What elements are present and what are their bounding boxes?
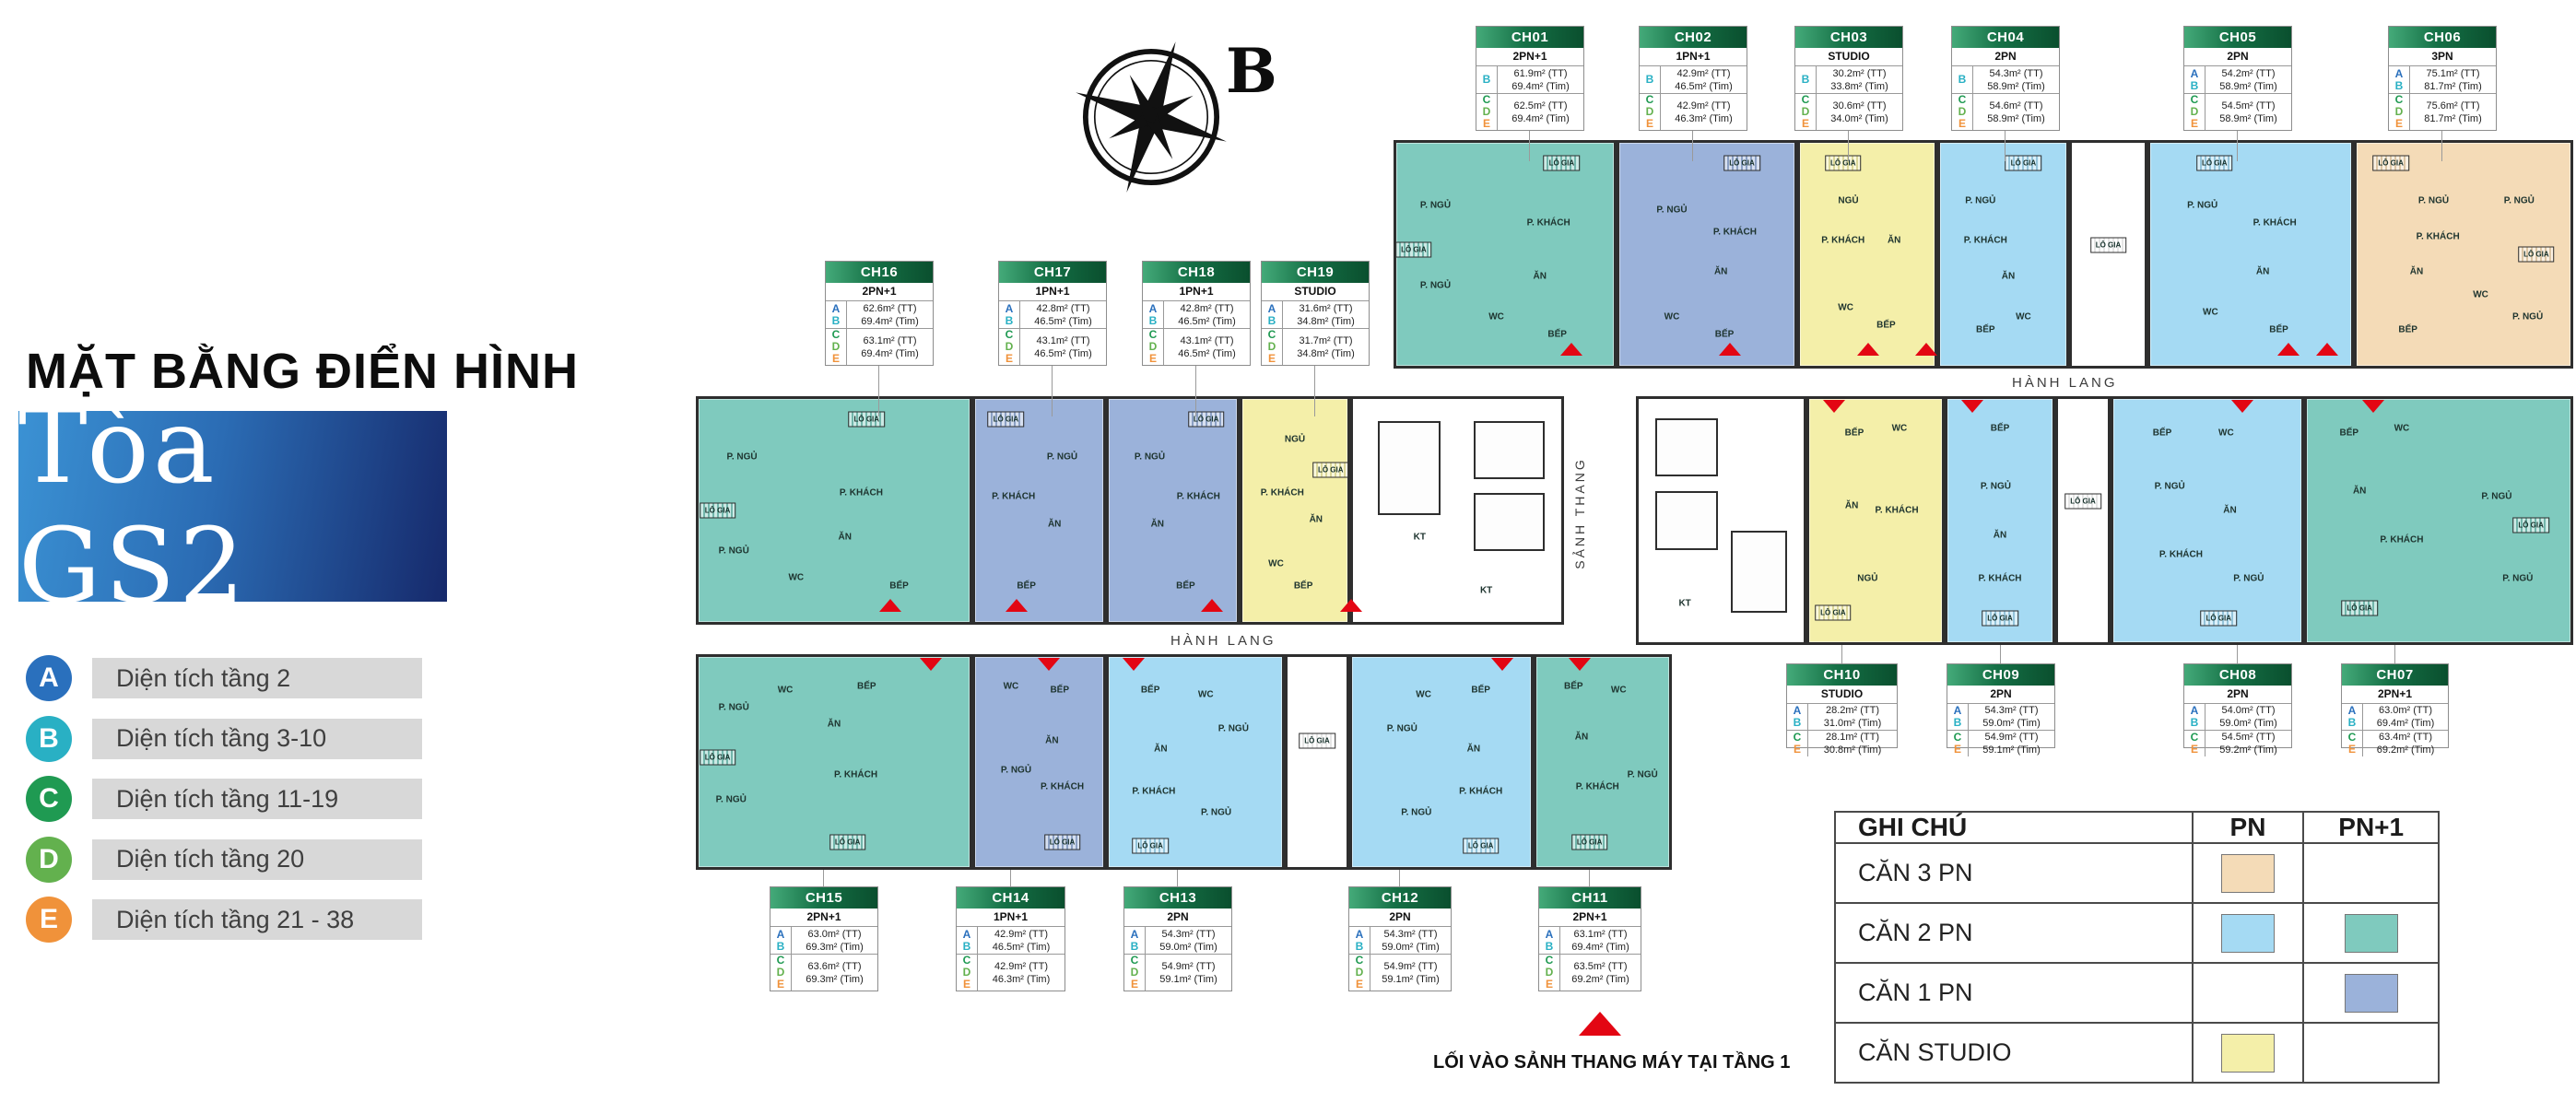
logia-label: LÔ GIA	[829, 834, 866, 850]
elevator-shaft	[1474, 493, 1545, 551]
logia-label: LÔ GIA	[1723, 155, 1760, 170]
room-label: WC	[1664, 311, 1680, 322]
plan-unit-conn-w: LÔ GIA	[1285, 654, 1349, 870]
unit-card-floor-letters: AB	[1787, 704, 1808, 730]
room-label: P. KHÁCH	[1978, 574, 2021, 584]
unit-card-title: CH13	[1124, 887, 1231, 909]
unit-card-ch18: CH181PN+1AB42.8m² (TT)46.5m² (Tim)CDE43.…	[1142, 261, 1251, 366]
entrance-arrow	[1006, 599, 1028, 612]
card-leader-line	[1399, 870, 1400, 886]
unit-card-type: 3PN	[2389, 48, 2496, 66]
room-label: BẾP	[1876, 321, 1896, 331]
floor-letter-e: E	[1795, 118, 1816, 130]
plan-unit-ch06: LÔ GIAP. NGỦP. NGỦP. KHÁCHĂNLÔ GIAWCBẾPP…	[2354, 140, 2573, 369]
entrance-arrow	[1857, 343, 1879, 356]
unit-card-ch08: CH082PNAB54.0m² (TT)59.0m² (Tim)CE54.5m²…	[2183, 663, 2292, 748]
unit-card-type: 2PN	[2184, 686, 2291, 704]
unit-card-type: 2PN+1	[2342, 686, 2448, 704]
unit-card-ch02: CH021PN+1B42.9m² (TT)46.5m² (Tim)CDE42.9…	[1639, 26, 1747, 131]
unit-card-ch07: CH072PN+1AB63.0m² (TT)69.4m² (Tim)CE63.4…	[2341, 663, 2449, 748]
unit-card-areas: 42.8m² (TT)46.5m² (Tim)	[1164, 301, 1250, 328]
unit-card-areas: 63.5m² (TT)69.2m² (Tim)	[1560, 955, 1641, 991]
floor-letter-a: A	[957, 929, 977, 941]
plan-unit-ch01: LÔ GIAP. NGỦP. KHÁCHLÔ GIAP. NGỦĂNWCBẾP	[1394, 140, 1617, 369]
floor-plan-page: { "title": "MẶT BẰNG ĐIỂN HÌNH", "buildi…	[0, 0, 2576, 1102]
unit-card-floor-letters: CDE	[1640, 94, 1661, 130]
card-leader-line	[1529, 129, 1530, 161]
card-leader-line	[2441, 129, 2442, 161]
room-label: ĂN	[1151, 519, 1164, 529]
unit-card-area-row: CDE75.6m² (TT)81.7m² (Tim)	[2389, 94, 2496, 130]
room-label: P. KHÁCH	[2380, 535, 2423, 545]
elevator-shaft	[1655, 418, 1718, 476]
elevator-shaft	[1731, 531, 1787, 614]
floor-letter-e: E	[826, 353, 846, 365]
room-label: BẾP	[2153, 428, 2172, 438]
room-label: WC	[778, 686, 794, 696]
card-leader-line	[1589, 870, 1590, 886]
room-label: P. KHÁCH	[1527, 218, 1570, 229]
unit-card-type: 2PN	[2184, 48, 2291, 66]
legend-table-row: CĂN 2 PN	[1835, 903, 2439, 963]
legend-swatch-pn-cell	[2193, 903, 2304, 963]
card-leader-line	[2000, 645, 2001, 663]
floor-letter-a: A	[2389, 68, 2409, 80]
unit-card-floor-letters: AB	[1539, 927, 1560, 954]
room-label: BẾP	[1564, 681, 1583, 691]
logia-label: LÔ GIA	[2341, 601, 2378, 616]
floor-letter-b: B	[1539, 941, 1559, 953]
room-label: ĂN	[1154, 744, 1167, 755]
floor-letter-b: B	[2184, 717, 2205, 729]
room-label: ĂN	[1714, 267, 1727, 277]
room-label: WC	[2016, 311, 2031, 322]
room-label: BẾP	[2398, 325, 2417, 335]
legend-swatch-pn-cell	[2193, 1023, 2304, 1083]
room-label: BẾP	[1141, 686, 1160, 696]
unit-card-areas: 28.1m² (TT)30.8m² (Tim)	[1808, 731, 1897, 756]
card-leader-line	[1314, 364, 1315, 416]
unit-card-area-row: AB75.1m² (TT)81.7m² (Tim)	[2389, 66, 2496, 94]
entrance-arrow	[1560, 343, 1582, 356]
unit-card-area-row: AB54.3m² (TT)59.0m² (Tim)	[1124, 927, 1231, 955]
unit-card-area-row: CDE31.7m² (TT)34.8m² (Tim)	[1262, 329, 1369, 365]
unit-card-title: CH08	[2184, 664, 2291, 686]
room-label: ĂN	[839, 533, 852, 543]
color-swatch-2pn	[2221, 914, 2275, 953]
plan-unit-ch05: LÔ GIAP. NGỦP. KHÁCHĂNWCBẾP	[2147, 140, 2354, 369]
unit-card-area-row: CDE54.9m² (TT)59.1m² (Tim)	[1349, 955, 1451, 991]
room-label: ĂN	[1575, 732, 1588, 742]
entrance-arrow	[1719, 343, 1741, 356]
room-label: P. NGỦ	[1001, 766, 1031, 776]
legend-swatch-pn1-cell	[2303, 963, 2439, 1023]
lobby-label: SẢNH THANG	[1561, 426, 1598, 601]
plan-unit-conn-e: LÔ GIA	[2055, 396, 2111, 645]
floor-letter-a: A	[1539, 929, 1559, 941]
unit-card-floor-letters: AB	[999, 301, 1020, 328]
legend-table-row: CĂN 1 PN	[1835, 963, 2439, 1023]
room-label: WC	[1892, 423, 1908, 433]
room-label: P. KHÁCH	[1261, 487, 1304, 498]
room-label: BẾP	[1845, 428, 1864, 438]
unit-card-floor-letters: CDE	[999, 329, 1020, 365]
unit-card-floor-letters: CDE	[1952, 94, 1973, 130]
legend-swatch-pn-cell	[2193, 963, 2304, 1023]
unit-card-floor-letters: B	[1476, 66, 1498, 93]
unit-card-floor-letters: CE	[2184, 731, 2205, 756]
room-label: P. KHÁCH	[1713, 227, 1757, 237]
legend-swatch-pn-cell	[2193, 843, 2304, 903]
floor-legend-row: DDiện tích tầng 20	[0, 837, 424, 883]
floor-letter-e: E	[2342, 744, 2362, 756]
unit-card-areas: 54.9m² (TT)59.1m² (Tim)	[1370, 955, 1451, 991]
floor-letter-b: B	[1947, 717, 1968, 729]
unit-card-floor-letters: AB	[770, 927, 792, 954]
unit-card-type: 2PN	[1349, 909, 1451, 927]
plan-unit-ch04: LÔ GIAP. NGỦP. KHÁCHĂNWCBẾP	[1937, 140, 2069, 369]
entrance-arrow	[1961, 400, 1983, 413]
unit-card-area-row: AB63.0m² (TT)69.4m² (Tim)	[2342, 704, 2448, 731]
unit-card-type: STUDIO	[1795, 48, 1902, 66]
floor-letter-b: B	[957, 941, 977, 953]
logia-label: LÔ GIA	[1825, 155, 1862, 170]
room-label: ĂN	[1888, 236, 1900, 246]
plan-unit-ch09: BẾPP. NGỦĂNP. KHÁCHLÔ GIA	[1945, 396, 2055, 645]
entrance-arrow	[1915, 343, 1937, 356]
room-label: ĂN	[2410, 267, 2423, 277]
card-leader-line	[2237, 129, 2238, 161]
unit-card-area-row: AB42.8m² (TT)46.5m² (Tim)	[999, 301, 1106, 329]
room-label: BẾP	[1294, 581, 1313, 592]
plan-unit-ch16: LÔ GIALÔ GIAP. NGỦP. KHÁCHP. NGỦĂNWCBẾP	[696, 396, 972, 625]
logia-label: LÔ GIA	[2196, 155, 2233, 170]
unit-card-areas: 54.3m² (TT)58.9m² (Tim)	[1973, 66, 2059, 93]
room-label: P. NGỦ	[1981, 482, 2011, 492]
room-label: P. NGỦ	[1628, 769, 1658, 780]
logia-label: LÔ GIA	[1815, 605, 1852, 621]
entrance-arrow	[1491, 658, 1513, 671]
unit-card-title: CH09	[1947, 664, 2054, 686]
room-label: BẾP	[1050, 686, 1069, 696]
floor-letter-a: A	[770, 929, 791, 941]
floor-legend-badge-c: C	[26, 776, 72, 822]
room-label: ĂN	[1310, 514, 1323, 524]
entrance-arrow	[1579, 1012, 1621, 1036]
logia-label: LÔ GIA	[1312, 463, 1349, 478]
room-label: P. KHÁCH	[1177, 492, 1220, 502]
floor-letter-e: E	[1124, 979, 1145, 991]
card-leader-line	[1841, 645, 1842, 663]
legend-row-label: CĂN 1 PN	[1835, 963, 2193, 1023]
floor-legend-badge-d: D	[26, 837, 72, 883]
floor-letter-a: A	[2184, 68, 2205, 80]
room-label: WC	[1488, 311, 1504, 322]
unit-card-areas: 75.1m² (TT)81.7m² (Tim)	[2410, 66, 2496, 93]
room-label: BẾP	[1176, 581, 1195, 592]
room-label: P. NGỦ	[2418, 195, 2449, 205]
plan-unit-ch11: BẾPWCĂNP. KHÁCHP. NGỦLÔ GIA	[1534, 654, 1672, 870]
unit-card-floor-letters: B	[1952, 66, 1973, 93]
room-label: BẾP	[1991, 423, 2010, 433]
unit-card-area-row: B42.9m² (TT)46.5m² (Tim)	[1640, 66, 1747, 94]
card-leader-line	[2005, 129, 2006, 161]
unit-card-area-row: CDE54.9m² (TT)59.1m² (Tim)	[1124, 955, 1231, 991]
legend-row-label: CĂN 2 PN	[1835, 903, 2193, 963]
unit-card-area-row: AB63.0m² (TT)69.3m² (Tim)	[770, 927, 877, 955]
entrance-arrow	[1340, 599, 1362, 612]
room-label: ĂN	[828, 719, 841, 729]
unit-card-area-row: CDE43.1m² (TT)46.5m² (Tim)	[1143, 329, 1250, 365]
legend-table-row: CĂN STUDIO	[1835, 1023, 2439, 1083]
logia-label: LÔ GIA	[1299, 733, 1335, 749]
unit-card-floor-letters: B	[1795, 66, 1817, 93]
unit-card-ch12: CH122PNAB54.3m² (TT)59.0m² (Tim)CDE54.9m…	[1348, 886, 1452, 991]
entrance-arrow	[2362, 400, 2384, 413]
room-label: P. NGỦ	[1387, 723, 1417, 733]
corridor-label: HÀNH LANG	[1170, 633, 1276, 649]
legend-table-header-pn: PN	[2193, 812, 2304, 843]
floor-letter-e: E	[1349, 979, 1370, 991]
unit-card-area-row: AB62.6m² (TT)69.4m² (Tim)	[826, 301, 933, 329]
room-label: WC	[788, 572, 804, 582]
unit-card-areas: 31.6m² (TT)34.8m² (Tim)	[1283, 301, 1369, 328]
unit-card-area-row: AB54.3m² (TT)59.0m² (Tim)	[1349, 927, 1451, 955]
unit-card-type: 1PN+1	[957, 909, 1065, 927]
floor-letter-e: E	[2389, 118, 2409, 130]
floor-letter-b: B	[826, 315, 846, 327]
room-label: P. NGỦ	[1135, 451, 1165, 462]
room-label: P. KHÁCH	[1132, 786, 1175, 796]
unit-card-ch13: CH132PNAB54.3m² (TT)59.0m² (Tim)CDE54.9m…	[1123, 886, 1232, 991]
unit-card-type: 2PN	[1124, 909, 1231, 927]
unit-card-floor-letters: CDE	[1795, 94, 1817, 130]
room-label: WC	[1268, 559, 1284, 569]
room-label: BẾP	[1471, 686, 1490, 696]
unit-card-areas: 54.0m² (TT)59.0m² (Tim)	[2205, 704, 2291, 730]
room-label: P. KHÁCH	[2159, 549, 2203, 559]
room-label: WC	[2218, 428, 2234, 438]
unit-card-area-row: AB42.8m² (TT)46.5m² (Tim)	[1143, 301, 1250, 329]
unit-card-ch06: CH063PNAB75.1m² (TT)81.7m² (Tim)CDE75.6m…	[2388, 26, 2497, 131]
unit-card-areas: 42.9m² (TT)46.5m² (Tim)	[978, 927, 1065, 954]
unit-card-floor-letters: AB	[1124, 927, 1146, 954]
room-label: ĂN	[2256, 267, 2269, 277]
room-label: BẾP	[2339, 428, 2358, 438]
legend-table-header-ghichu: GHI CHÚ	[1835, 812, 2193, 843]
entrance-note: LỐI VÀO SẢNH THANG MÁY TẠI TẦNG 1	[1433, 1052, 1783, 1073]
unit-card-area-row: AB31.6m² (TT)34.8m² (Tim)	[1262, 301, 1369, 329]
plan-unit-ch10: BẾPWCĂNP. KHÁCHNGỦLÔ GIA	[1806, 396, 1945, 645]
unit-card-areas: 43.1m² (TT)46.5m² (Tim)	[1020, 329, 1106, 365]
unit-card-type: 2PN+1	[1476, 48, 1583, 66]
building-name-banner: Tòa GS2	[18, 411, 447, 602]
room-label: P. NGỦ	[716, 795, 747, 805]
plan-unit-ch02: LÔ GIAP. NGỦP. KHÁCHĂNWCBẾP	[1617, 140, 1797, 369]
logia-label: LÔ GIA	[2064, 493, 2101, 509]
unit-card-area-row: AB28.2m² (TT)31.0m² (Tim)	[1787, 704, 1897, 731]
logia-label: LÔ GIA	[1982, 610, 2018, 626]
room-label: ĂN	[1994, 530, 2006, 540]
unit-card-ch17: CH171PN+1AB42.8m² (TT)46.5m² (Tim)CDE43.…	[998, 261, 1107, 366]
unit-card-area-row: CE54.9m² (TT)59.1m² (Tim)	[1947, 731, 2054, 756]
floor-letter-b: B	[1124, 941, 1145, 953]
logia-label: LÔ GIA	[1132, 838, 1169, 854]
room-label: P. KHÁCH	[1876, 506, 1919, 516]
logia-label: LÔ GIA	[700, 750, 736, 766]
unit-card-areas: 54.3m² (TT)59.0m² (Tim)	[1146, 927, 1231, 954]
unit-card-type: STUDIO	[1262, 283, 1369, 301]
plan-unit-core-e: KT	[1636, 396, 1806, 645]
unit-card-areas: 62.5m² (TT)69.4m² (Tim)	[1498, 94, 1583, 130]
logia-label: LÔ GIA	[1044, 834, 1081, 850]
legend-row-label: CĂN STUDIO	[1835, 1023, 2193, 1083]
unit-card-title: CH16	[826, 262, 933, 283]
unit-card-floor-letters: AB	[826, 301, 847, 328]
floor-legend-row: CDiện tích tầng 11-19	[0, 776, 424, 822]
floor-letter-b: B	[1262, 315, 1282, 327]
unit-card-area-row: AB54.2m² (TT)58.9m² (Tim)	[2184, 66, 2291, 94]
unit-card-areas: 42.8m² (TT)46.5m² (Tim)	[1020, 301, 1106, 328]
room-label: ĂN	[1467, 744, 1480, 755]
unit-card-areas: 30.2m² (TT)33.8m² (Tim)	[1817, 66, 1902, 93]
unit-card-title: CH04	[1952, 27, 2059, 48]
unit-card-areas: 54.2m² (TT)58.9m² (Tim)	[2205, 66, 2291, 93]
unit-card-areas: 42.9m² (TT)46.5m² (Tim)	[1661, 66, 1747, 93]
unit-card-ch19: CH19STUDIOAB31.6m² (TT)34.8m² (Tim)CDE31…	[1261, 261, 1370, 366]
floor-letter-e: E	[2184, 118, 2205, 130]
unit-card-floor-letters: AB	[2184, 704, 2205, 730]
floor-letter-b: B	[1349, 941, 1370, 953]
room-label: ĂN	[1534, 272, 1547, 282]
legend-table-row: CĂN 3 PN	[1835, 843, 2439, 903]
room-label: WC	[1198, 690, 1214, 700]
entrance-arrow	[1201, 599, 1223, 612]
room-label: P. NGỦ	[2502, 574, 2533, 584]
unit-card-floor-letters: AB	[1143, 301, 1164, 328]
unit-card-areas: 42.9m² (TT)46.3m² (Tim)	[978, 955, 1065, 991]
floor-legend-row: EDiện tích tầng 21 - 38	[0, 897, 424, 943]
unit-card-floor-letters: CE	[1787, 731, 1808, 756]
room-label: KT	[1480, 586, 1492, 596]
color-swatch-2pn1	[2345, 914, 2398, 953]
room-label: WC	[1004, 681, 1019, 691]
room-label: P. NGỦ	[1201, 807, 1231, 817]
unit-card-title: CH02	[1640, 27, 1747, 48]
unit-card-title: CH07	[2342, 664, 2448, 686]
floor-letter-b: B	[2184, 80, 2205, 92]
room-label: P. NGỦ	[1656, 205, 1687, 215]
floor-letter-e: E	[957, 979, 977, 991]
unit-card-area-row: B30.2m² (TT)33.8m² (Tim)	[1795, 66, 1902, 94]
floor-legend-badge-b: B	[26, 716, 72, 762]
elevator-shaft	[1474, 421, 1545, 479]
unit-card-ch16: CH162PN+1AB62.6m² (TT)69.4m² (Tim)CDE63.…	[825, 261, 934, 366]
logia-label: LÔ GIA	[988, 411, 1025, 427]
plan-unit-ch17: LÔ GIAP. NGỦP. KHÁCHĂNBẾP	[972, 396, 1106, 625]
logia-label: LÔ GIA	[2512, 518, 2549, 533]
room-label: NGỦ	[1857, 574, 1877, 584]
room-label: ĂN	[2002, 272, 2015, 282]
room-label: WC	[1838, 303, 1853, 313]
room-label: WC	[1611, 686, 1627, 696]
unit-card-area-row: CDE43.1m² (TT)46.5m² (Tim)	[999, 329, 1106, 365]
logia-label: LÔ GIA	[2518, 247, 2555, 263]
unit-card-area-row: CDE30.6m² (TT)34.0m² (Tim)	[1795, 94, 1902, 130]
plan-unit-ch18: LÔ GIAP. NGỦP. KHÁCHĂNBẾP	[1106, 396, 1240, 625]
unit-card-title: CH12	[1349, 887, 1451, 909]
unit-card-floor-letters: CE	[1947, 731, 1969, 756]
floor-legend-label: Diện tích tầng 21 - 38	[92, 899, 422, 940]
plan-unit-ch14: WCBẾPĂNP. NGỦP. KHÁCHLÔ GIA	[972, 654, 1106, 870]
card-leader-line	[2394, 645, 2395, 663]
floor-letter-e: E	[770, 979, 791, 991]
unit-card-floor-letters: AB	[1349, 927, 1370, 954]
unit-card-type: STUDIO	[1787, 686, 1897, 704]
floor-letter-e: E	[1539, 979, 1559, 991]
unit-card-area-row: B54.3m² (TT)58.9m² (Tim)	[1952, 66, 2059, 94]
compass-rose-icon	[1067, 33, 1235, 201]
logia-label: LÔ GIA	[2006, 155, 2042, 170]
unit-card-ch03: CH03STUDIOB30.2m² (TT)33.8m² (Tim)CDE30.…	[1794, 26, 1903, 131]
unit-card-title: CH15	[770, 887, 877, 909]
logia-label: LÔ GIA	[1188, 411, 1225, 427]
floor-letter-b: B	[2389, 80, 2409, 92]
unit-card-areas: 54.3m² (TT)59.0m² (Tim)	[1370, 927, 1451, 954]
legend-table-header-pn1: PN+1	[2303, 812, 2439, 843]
room-label: P. NGỦ	[1401, 807, 1431, 817]
card-leader-line	[1848, 129, 1849, 161]
room-label: BẾP	[1976, 325, 1995, 335]
unit-card-floor-letters: AB	[2342, 704, 2363, 730]
legend-swatch-pn1-cell	[2303, 1023, 2439, 1083]
floor-legend-label: Diện tích tầng 2	[92, 658, 422, 698]
unit-card-areas: 54.9m² (TT)59.1m² (Tim)	[1969, 731, 2054, 756]
room-label: NGỦ	[1838, 195, 1858, 205]
room-label: ĂN	[1045, 736, 1058, 746]
floor-letter-e: E	[2184, 744, 2205, 756]
unit-card-type: 2PN	[1952, 48, 2059, 66]
room-label: P. NGỦ	[1047, 451, 1077, 462]
room-label: BẾP	[889, 581, 909, 592]
floor-letter-e: E	[1476, 118, 1497, 130]
floor-letter-a: A	[1143, 303, 1163, 315]
room-label: P. NGỦ	[2155, 482, 2185, 492]
unit-card-floor-letters: AB	[2389, 66, 2410, 93]
plan-unit-ch19: NGỦLÔ GIAP. KHÁCHĂNWCBẾP	[1240, 396, 1350, 625]
logia-label: LÔ GIA	[2372, 155, 2409, 170]
room-label: P. NGỦ	[2187, 200, 2217, 210]
building-name: Tòa GS2	[18, 387, 447, 627]
unit-card-areas: 63.0m² (TT)69.4m² (Tim)	[2363, 704, 2448, 730]
card-leader-line	[1052, 364, 1053, 416]
unit-card-floor-letters: CDE	[1349, 955, 1370, 991]
unit-card-title: CH05	[2184, 27, 2291, 48]
unit-card-type: 2PN	[1947, 686, 2054, 704]
unit-card-area-row: AB63.1m² (TT)69.4m² (Tim)	[1539, 927, 1641, 955]
room-label: KT	[1678, 598, 1690, 608]
floor-legend-badge-a: A	[26, 655, 72, 701]
unit-card-floor-letters: CDE	[1262, 329, 1283, 365]
plan-unit-ch13: BẾPWCP. NGỦĂNP. KHÁCHP. NGỦLÔ GIA	[1106, 654, 1285, 870]
logia-label: LÔ GIA	[1544, 155, 1581, 170]
unit-card-areas: 62.6m² (TT)69.4m² (Tim)	[847, 301, 933, 328]
room-label: P. KHÁCH	[1821, 236, 1864, 246]
unit-card-ch14: CH141PN+1AB42.9m² (TT)46.5m² (Tim)CDE42.…	[956, 886, 1065, 991]
room-label: ĂN	[2353, 487, 2366, 497]
unit-card-areas: 28.2m² (TT)31.0m² (Tim)	[1808, 704, 1897, 730]
unit-card-title: CH19	[1262, 262, 1369, 283]
